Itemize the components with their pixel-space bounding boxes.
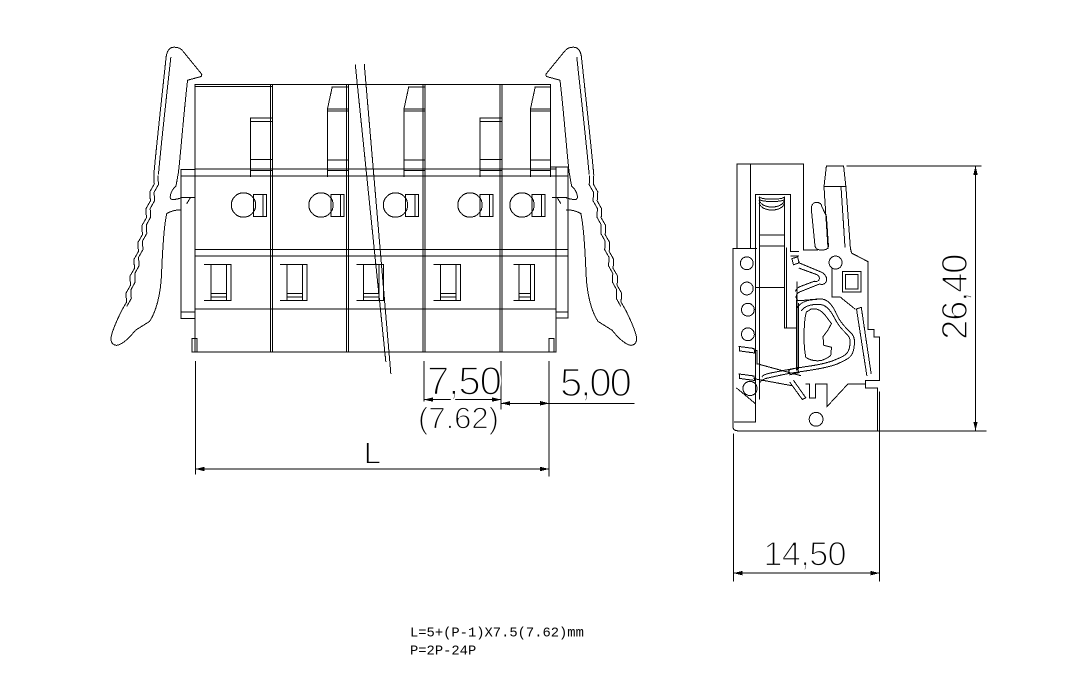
svg-text:26,40: 26,40 — [934, 255, 975, 340]
svg-text:14,50: 14,50 — [764, 536, 847, 574]
svg-text:L=5+(P-1)X7.5(7.62)mm: L=5+(P-1)X7.5(7.62)mm — [410, 626, 584, 642]
svg-text:P=2P-24P: P=2P-24P — [410, 645, 476, 660]
svg-text:7,50: 7,50 — [427, 360, 501, 404]
svg-text:(7.62): (7.62) — [418, 401, 499, 436]
svg-text:L: L — [364, 435, 381, 470]
svg-text:5,00: 5,00 — [560, 361, 631, 405]
